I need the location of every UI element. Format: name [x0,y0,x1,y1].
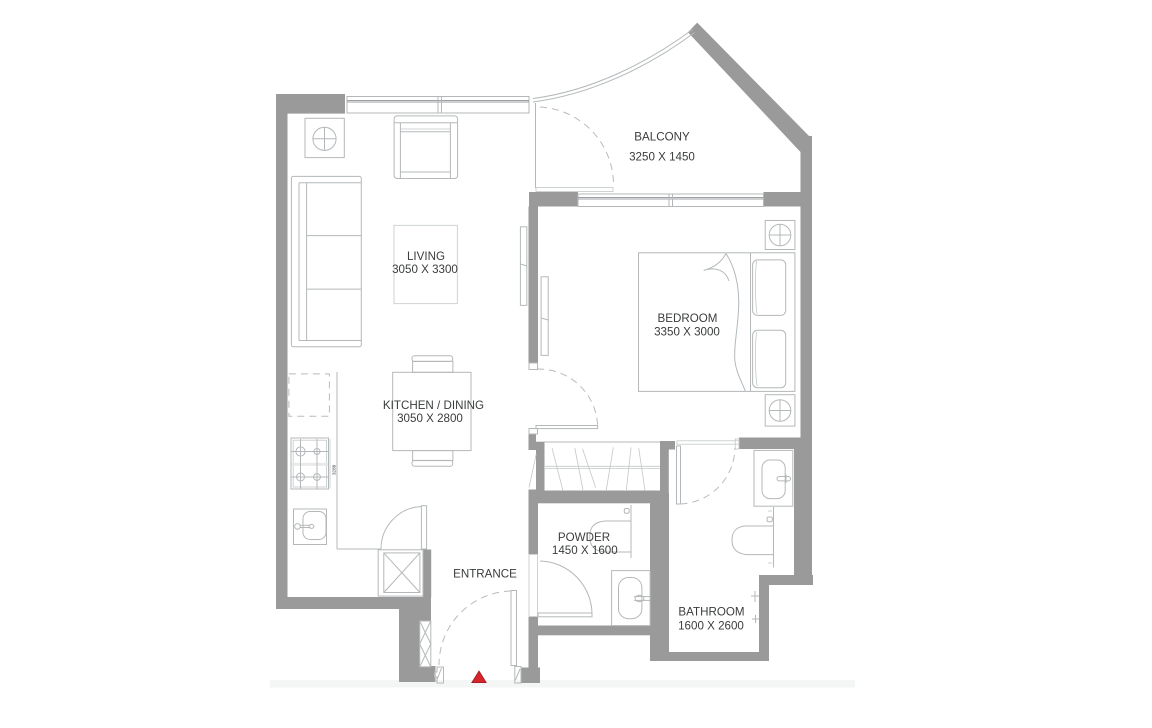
svg-text:3050 X 2800: 3050 X 2800 [397,412,463,425]
svg-text:BEDROOM: BEDROOM [658,312,718,325]
svg-text:1600 X 2600: 1600 X 2600 [678,620,744,633]
svg-text:3050 X 3300: 3050 X 3300 [392,263,458,276]
svg-text:LIVING: LIVING [407,250,445,263]
svg-text:BATHROOM: BATHROOM [678,606,744,619]
svg-text:ENTRANCE: ENTRANCE [453,568,517,581]
svg-text:KITCHEN / DINING: KITCHEN / DINING [383,399,484,412]
svg-text:BALCONY: BALCONY [634,131,690,144]
svg-text:3250 X 1450: 3250 X 1450 [629,151,695,164]
svg-text:3350 X 3000: 3350 X 3000 [654,326,720,339]
svg-text:POWDER: POWDER [558,531,610,544]
svg-text:3288: 3288 [332,464,337,475]
svg-text:1450 X 1600: 1450 X 1600 [552,544,618,557]
